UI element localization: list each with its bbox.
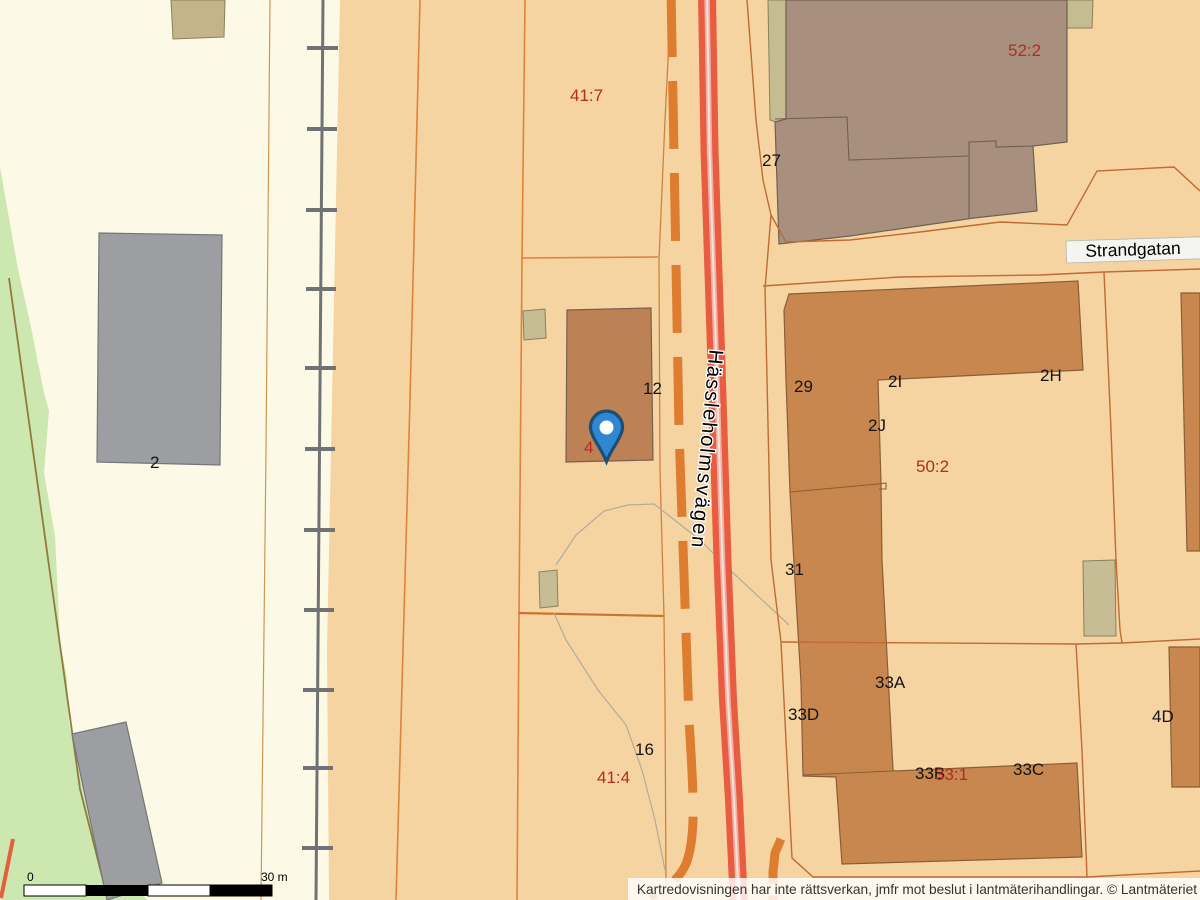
svg-text:2I: 2I: [888, 372, 902, 391]
svg-text:41:7: 41:7: [570, 86, 603, 105]
svg-text:30 m: 30 m: [261, 870, 288, 884]
svg-text:2J: 2J: [868, 416, 886, 435]
svg-text:33C: 33C: [1013, 760, 1044, 779]
svg-text:52:2: 52:2: [1008, 41, 1041, 60]
svg-text:33:1: 33:1: [935, 765, 968, 784]
svg-text:41:4: 41:4: [597, 768, 630, 787]
svg-text:31: 31: [785, 560, 804, 579]
svg-text:4D: 4D: [1152, 707, 1174, 726]
svg-text:Strandgatan: Strandgatan: [1085, 238, 1181, 261]
svg-text:16: 16: [635, 740, 654, 759]
svg-text:33A: 33A: [875, 673, 906, 692]
svg-text:Kartredovisningen har inte rät: Kartredovisningen har inte rättsverkan, …: [637, 882, 1197, 897]
svg-text:29: 29: [794, 377, 813, 396]
svg-text:2H: 2H: [1040, 366, 1062, 385]
svg-text:50:2: 50:2: [916, 457, 949, 476]
svg-text:2: 2: [150, 453, 159, 472]
svg-text:4: 4: [584, 438, 593, 457]
svg-text:33D: 33D: [788, 705, 819, 724]
svg-text:27: 27: [762, 151, 781, 170]
svg-text:12: 12: [643, 379, 662, 398]
svg-text:0: 0: [27, 870, 34, 884]
